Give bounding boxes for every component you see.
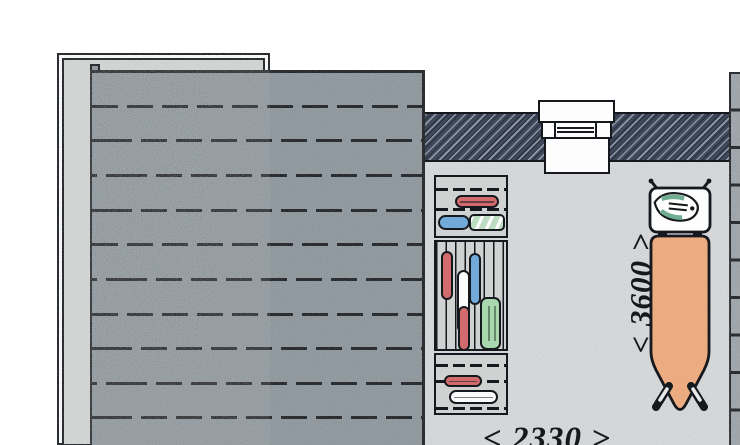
shelf-edge-line	[436, 188, 506, 191]
plank-joint-line	[92, 105, 422, 108]
board-leg-left	[656, 386, 669, 407]
plank-joint-line	[92, 382, 422, 385]
window-outer-sill	[538, 100, 615, 123]
shelf-unit-bottom	[434, 353, 508, 415]
shelf-edge-line	[436, 364, 506, 367]
stored-item-green-box	[480, 297, 501, 350]
plank-joint-line	[92, 243, 422, 246]
shelf-unit-top	[434, 175, 508, 238]
side-wall-strip	[729, 72, 740, 445]
window-inner-sill	[544, 137, 610, 174]
plank-joint-line	[92, 209, 422, 212]
stored-item-red-bottle	[441, 251, 453, 300]
stored-item-blue-roll	[438, 215, 470, 230]
stored-item-red-flat	[444, 375, 482, 387]
plank-joint-line	[92, 416, 422, 419]
dimension-3600: < 3600 >	[621, 218, 661, 368]
plank-joint-line	[92, 139, 422, 142]
plank-joint-line	[92, 174, 422, 177]
shelf-edge-line	[436, 208, 506, 211]
window-glazing-line	[557, 131, 594, 133]
stored-item-red-roll	[455, 195, 499, 208]
plank-joint-line	[92, 313, 422, 316]
window-jamb	[595, 123, 597, 137]
shelf-unit-middle-slatted	[434, 240, 508, 351]
stored-item-green-striped-roll	[469, 214, 505, 231]
stored-item-white-tube	[449, 390, 498, 404]
shelf-edge-line	[436, 407, 506, 410]
dimension-2330: < 2330 >	[462, 419, 632, 445]
window-jamb	[554, 123, 556, 137]
stored-item-blue-bottle	[469, 253, 481, 305]
plank-joint-line	[92, 347, 422, 350]
stored-item-red-bottle	[458, 306, 470, 351]
window-glazing-line	[557, 127, 594, 129]
floor-plan-canvas: < 3600 > < 2330 >	[0, 0, 740, 445]
deck-planks	[90, 70, 425, 445]
board-leg-right	[691, 386, 704, 407]
plank-joint-line	[92, 278, 422, 281]
